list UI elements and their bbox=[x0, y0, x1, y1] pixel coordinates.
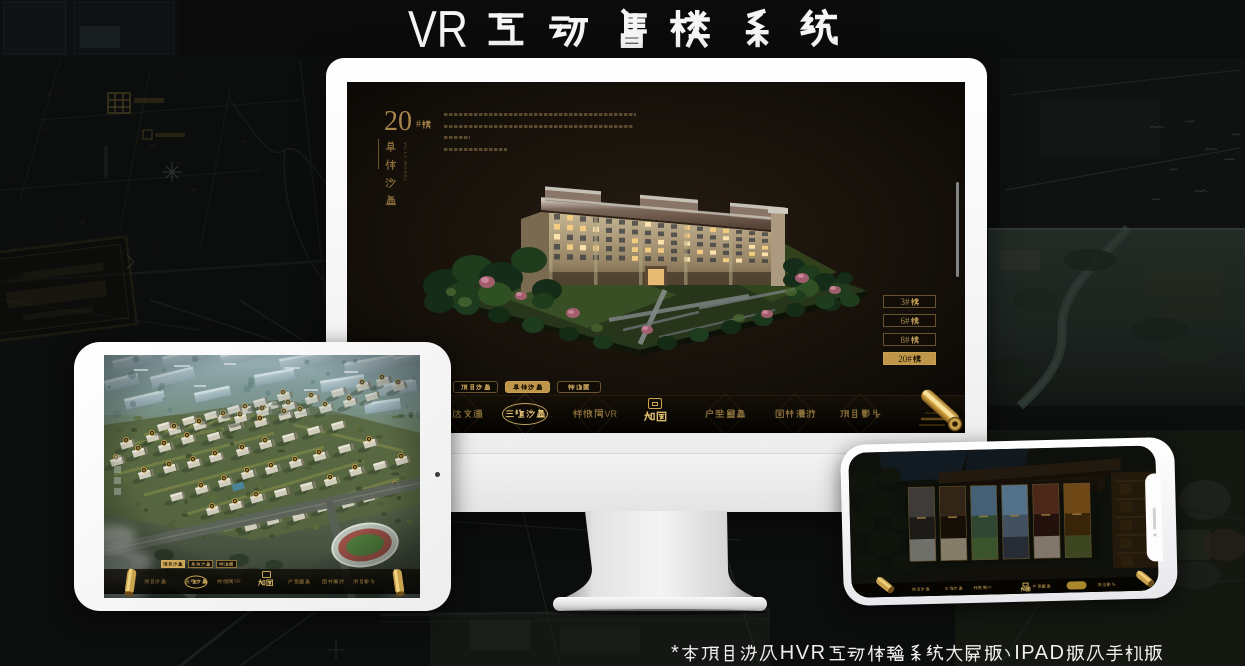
svg-text:VR: VR bbox=[408, 1, 468, 59]
